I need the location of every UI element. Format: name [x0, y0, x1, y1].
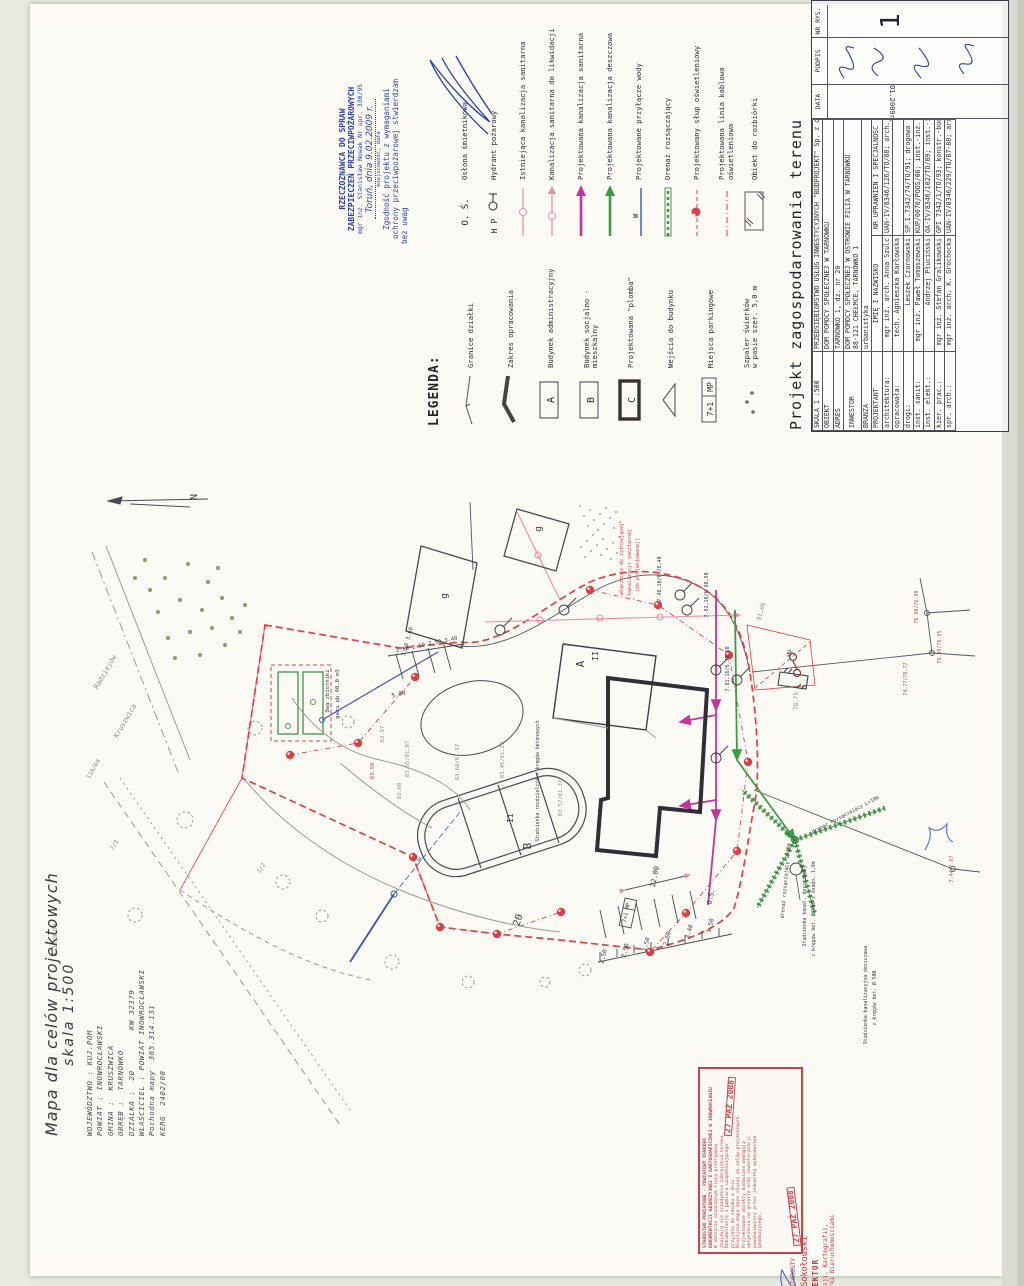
- light-pole-symbol: [436, 923, 444, 931]
- pzud-body: W obszarze oznaczonym linią przerywanązn…: [714, 1073, 764, 1248]
- map-label: 7.48,10/6.78,40: [657, 556, 663, 601]
- legend-item: W Projektowane przyłącze wody: [625, 0, 654, 238]
- staff-role: inst. elekt.:: [924, 352, 934, 431]
- map-label: z kręgów bet. Ø 500: [871, 970, 878, 1025]
- tb-row-label: SKALA 1 :500: [813, 352, 823, 431]
- map-purpose-note: Mapa dla celów projektowych skala 1:500 …: [42, 878, 180, 1136]
- map-label: 110/04: [85, 758, 102, 781]
- tb-row-value: DOM POMOCY SPOŁECZNEJ W OSTROWIE FILIA W…: [844, 120, 862, 352]
- map-note-lines: WOJEWÓDZTWO : KUJ.POMPOWIAT : INOWROCŁAW…: [85, 878, 168, 1136]
- building-c-icon: C: [617, 368, 645, 426]
- map-label: 83.60: [397, 783, 403, 800]
- red-parcel-lines: [180, 625, 815, 890]
- map-label: Studzienka rozdzielcza z kręgów betonowy…: [534, 720, 541, 841]
- tb-row-value: PRZEDSIĘBIORSTWO USŁUG INWESTYCYJNYCH "B…: [813, 120, 823, 352]
- map-label: 81.00: [756, 602, 768, 622]
- map-label: N: [189, 494, 200, 500]
- staff-license: [893, 120, 903, 236]
- legend-item-label: Zakres opracowania: [507, 290, 515, 368]
- light-pole-symbol: [493, 930, 501, 938]
- title-block-right-columns: DATA 01.2009r. PODPIS NR RYS. 1: [812, 5, 1008, 119]
- staff-license: GPI 7342/1/TO/93; konstr.-bud.: [934, 120, 944, 236]
- legend-item-label: Istniejąca kanalizacja sanitarna: [519, 42, 527, 180]
- inspector-dept2: Katastru i Gospodarki Nieruchomościami: [829, 1204, 836, 1286]
- scope-line-icon: [501, 368, 521, 426]
- legend-item: A Budynek administracyjny: [531, 240, 571, 426]
- map-note-scale: skala 1:500: [61, 878, 77, 1066]
- date-column: DATA 01.2009r.: [812, 85, 1008, 119]
- spruce-dots-icon: [740, 368, 762, 426]
- sewer-existing-icon: [514, 180, 533, 238]
- map-label: włączenie do istniejącej: [619, 523, 625, 595]
- legend-item-label: Projektowana kanalizacja deszczowa: [606, 33, 614, 180]
- title-block: Projekt zagospodarowania terenu SKALA 1 …: [785, 0, 1012, 432]
- boundary-line-icon: [461, 368, 481, 426]
- demolition-shed: [778, 668, 808, 689]
- legend-item: Projektowany słup oświetleniowy: [683, 0, 712, 238]
- map-label: 2.50: [598, 948, 609, 964]
- sewer-sanitary-projected: [680, 590, 716, 905]
- pen-mark: [925, 824, 953, 850]
- staff-role: opracowała:: [893, 352, 903, 431]
- fire-stamp-line4: Zgodność projektu z wymaganiami: [382, 60, 391, 258]
- tb-row-label: ADRES: [833, 352, 843, 431]
- fire-stamp-line5: ochrony przeciwpożarowej stwierdzam: [391, 60, 400, 258]
- svg-text:A: A: [546, 397, 557, 403]
- map-label: Kruszwica: [112, 703, 138, 740]
- legend-item-label: Budynek administracyjny: [547, 268, 555, 368]
- tb-staff-col2: IMIĘ I NAZWISKO: [872, 236, 882, 352]
- legend-item: Drenaż rozsączający: [654, 0, 683, 238]
- map-label: 7/3: [109, 838, 121, 851]
- signatures: [826, 38, 1006, 84]
- map-label: g: [440, 593, 450, 598]
- building-a-icon: A: [538, 368, 564, 426]
- scanner-edge-dark: [1017, 0, 1024, 1286]
- sewer-existing: [485, 512, 740, 623]
- light-pole-symbol: [557, 908, 565, 916]
- map-note-heading: Mapa dla celów projektowych: [42, 878, 61, 1136]
- legend-item-label: Projektowana kanalizacja sanitarna: [577, 33, 585, 180]
- legend-item-label: Wejścia do budynku: [667, 290, 675, 368]
- map-label: O.Ś.: [705, 888, 717, 905]
- gas-tank-pad: [271, 665, 331, 741]
- staff-role: kier. prac.:: [934, 352, 944, 431]
- staff-name: mgr inż. Paweł Tomaszewski: [914, 236, 924, 352]
- map-label: Hp: [786, 649, 793, 657]
- map-label: 83.50: [370, 763, 376, 780]
- staff-license: UAN-IV/8346/126/TO/88; arch.: [882, 120, 892, 236]
- staff-license: UAN-IV/8346/229/TO/87-88; arch.: [945, 120, 955, 236]
- demolition-rect-icon: [743, 180, 769, 238]
- legend-item: Zakres opracowania: [491, 240, 531, 426]
- drawing-number-header: NR RYS.: [812, 5, 828, 37]
- light-pole-symbol: [286, 751, 294, 759]
- building-c-plomba: [597, 678, 707, 856]
- map-note-line: POWIAT : INOWROCŁAWSKI: [95, 878, 105, 1136]
- svg-text:B: B: [586, 397, 597, 403]
- map-label: 7.82,10/6.80,90: [704, 572, 710, 617]
- legend-item: Istniejąca kanalizacja sanitarna: [509, 0, 538, 238]
- staff-role: architektura:: [882, 352, 892, 431]
- light-pole-symbol: [733, 847, 741, 855]
- legend-item-label: Kanalizacja sanitarna do likwidacji: [548, 29, 556, 180]
- map-note-line: WOJEWÓDZTWO : KUJ.POM: [85, 878, 95, 1136]
- hydrant-icon: H P: [485, 180, 505, 238]
- map-label: 79.25/75.95: [937, 630, 943, 663]
- legend-item-label: Granice działki: [467, 303, 475, 368]
- staff-role: drogi:: [903, 352, 913, 431]
- map-label: 83.55/81.87: [405, 741, 411, 777]
- map-label: 76.80/76.90: [914, 590, 920, 623]
- map-label: Dwa zbiorniki: [325, 669, 331, 712]
- staff-name: mgr inż. arch. Anna Szulc: [882, 236, 892, 352]
- legend-item: 7+1MP Miejsca parkingowe: [691, 240, 731, 426]
- legend-right-column: O. Ś. Osłona śmietnikowaH P Hydrant poża…: [451, 0, 770, 238]
- legend-item: Projektowana linia kablowa oświetleniowa: [712, 0, 741, 238]
- map-label: kanalizacji sanitarnej: [627, 529, 633, 595]
- legend-item: Projektowana kanalizacja deszczowa: [596, 0, 625, 238]
- tb-row-value: DOM POMOCY SPOŁECZNEJ W TARNÓWKU: [823, 120, 833, 352]
- water-line-icon: W: [630, 180, 649, 238]
- oval-lawn: [412, 670, 531, 766]
- map-note-line: DZIAŁKA : 20 KW 32379: [127, 878, 137, 1136]
- fire-stamp-handwritten-date: Toruń, dnia 9.02.2009 r.: [366, 99, 376, 218]
- light-pole-symbol: [411, 673, 419, 681]
- staff-name: Leszek Czarnowski: [903, 236, 913, 352]
- map-label: 83.45/81.23: [500, 742, 506, 778]
- map-label: Studzienka kanalizacyjna deszczowa: [863, 946, 869, 1044]
- map-note-line: Pochodna mapy 365.314.131: [147, 878, 157, 1136]
- signature-column: PODPIS: [812, 38, 1008, 85]
- tree-dots: [133, 558, 247, 660]
- inspector-title: INSPEKTOR: [811, 1204, 820, 1286]
- sewer-sanitary-proj-icon: [572, 180, 591, 238]
- tb-row-label: OBIEKT: [823, 352, 833, 431]
- map-label: 1.50: [705, 917, 716, 933]
- title-block-table: SKALA 1 :500 PRZEDSIĘBIORSTWO USŁUG INWE…: [811, 0, 1009, 432]
- map-label: 83.68/81.57: [455, 744, 461, 780]
- cable-line-icon: [717, 180, 736, 238]
- sewer-liquidate-icon: [543, 180, 562, 238]
- legend-item-label: Projektowane przyłącze wody: [635, 63, 643, 180]
- tb-row-label: BRANŻA: [862, 352, 872, 431]
- staff-license: KUP/0070/POOS/06; inst.-inż.: [914, 120, 924, 236]
- map-label: Studzienka kanal. deszczowej: [802, 866, 808, 947]
- lighting-cable: [290, 590, 748, 952]
- map-label: II: [506, 813, 515, 823]
- parking-box-icon: 7+1MP: [700, 368, 722, 426]
- fire-expert-stamp: RZECZOZNAWCA DO SPRAW ZABEZPIECZEŃ PRZEC…: [338, 60, 462, 258]
- tb-staff-col1: PROJEKTANT: [872, 352, 882, 431]
- light-pole-symbol: [586, 586, 594, 594]
- map-label: 22.00: [649, 865, 661, 887]
- legend-item: Kanalizacja sanitarna do likwidacji: [538, 0, 567, 238]
- svg-text:7+1: 7+1: [706, 402, 715, 417]
- drawing-title: Projekt zagospodarowania terenu: [787, 0, 805, 430]
- legend-item-label: Obiekt do rozbiórki: [751, 98, 759, 180]
- entrance-triangle-icon: [660, 368, 682, 426]
- map-label: 5.00: [391, 689, 407, 699]
- map-label: gazu pb 40,0 m3: [335, 669, 341, 719]
- legend-item-label: Projektowany słup oświetleniowy: [693, 46, 701, 180]
- svg-text:H P: H P: [490, 219, 499, 234]
- light-pole-symbol: [409, 853, 417, 861]
- map-label: A: [574, 660, 587, 667]
- legend-item: Wejścia do budynku: [651, 240, 691, 426]
- light-pole-symbol: [354, 739, 362, 747]
- svg-text:MP: MP: [706, 382, 715, 392]
- inspector-stamp: z up. STAROSTY Sławomir Sokołowski INSPE…: [790, 1204, 886, 1286]
- map-label: 20: [512, 913, 526, 928]
- legend-item: Projektowana kanalizacja sanitarna: [567, 0, 596, 238]
- staff-role: inst. sanit:: [914, 352, 924, 431]
- light-pole-symbol: [744, 758, 752, 766]
- drawing-number: 1: [876, 5, 906, 37]
- gravel-stipple: [579, 505, 621, 560]
- fire-stamp-line1: RZECZOZNAWCA DO SPRAW: [338, 60, 347, 258]
- map-label: B: [521, 842, 534, 849]
- tb-row-label: INWESTOR: [844, 352, 862, 431]
- fire-stamp-line2: ZABEZPIECZEŃ PRZECIWPOŻAROWYCH: [347, 60, 356, 258]
- legend-item: C Projektowana "plomba": [611, 240, 651, 426]
- staff-license: SP.I.7342/74/TO/91; drogowa: [903, 120, 913, 236]
- light-pole-icon: [688, 180, 707, 238]
- fire-stamp-signature: [426, 54, 496, 144]
- map-note-line: WŁAŚCICIEL : POWIAT INOWROCŁAWSKI: [137, 878, 147, 1136]
- staff-name: mgr inż. Stefan Gralikowski: [934, 236, 944, 352]
- legend-item: Obiekt do rozbiórki: [741, 0, 770, 238]
- existing-buildings: [406, 509, 569, 648]
- fire-stamp-line3: mgr inż. Stanisław Nowak Nr upr. 330/95: [356, 60, 365, 258]
- tb-row-value: TARNÓWKO 1, dz. nr 20: [833, 120, 843, 352]
- map-label: 78.75: [793, 692, 800, 710]
- tb-staff-col3: NR UPRAWNIEŃ I SPECJALNOŚĆ: [872, 120, 882, 236]
- map-label: z kręgów bet. Ø 500 z osadn. 1,0m: [810, 861, 817, 956]
- map-label: g: [534, 526, 544, 531]
- drawing-number-column: NR RYS. 1: [812, 5, 1008, 38]
- building-b-icon: B: [578, 368, 604, 426]
- map-label: 7.44/7.67: [949, 855, 955, 882]
- legend-left-column: Granice działki Zakres opracowaniaA Budy…: [451, 240, 771, 426]
- staff-name: mgr inż. arch. K. Grochocka: [945, 236, 955, 352]
- sewer-storm-proj-icon: [601, 180, 620, 238]
- light-pole-symbol: [682, 909, 690, 917]
- fire-stamp-line6: bez uwag: [400, 60, 409, 258]
- map-note-line: KERG 2402/08: [158, 878, 168, 1136]
- map-label: (do projektowanej): [635, 538, 641, 592]
- svg-text:C: C: [627, 397, 638, 403]
- manholes: [495, 583, 749, 763]
- map-label: 7.81,16/6.79,60: [725, 646, 731, 691]
- pzud-stamp: STAROSTWO POWIATOWE - POWIATOWY OŚRODEK …: [698, 1067, 803, 1254]
- pzud-body-line: geodezyjnego.: [758, 1073, 764, 1248]
- map-label: 2.50: [620, 942, 631, 958]
- map-label: II: [591, 651, 600, 661]
- map-note-line: GMINA : KRUSZWICA: [106, 878, 116, 1136]
- legend-item-label: Projektowana "plomba": [627, 277, 635, 368]
- date-header: DATA: [812, 85, 828, 118]
- legend-item-label: Szpaler świerków w pasie szer. 5,0 m: [743, 286, 759, 368]
- legend-item: Granice działki: [451, 240, 491, 426]
- date-value: 01.2009r.: [888, 85, 896, 118]
- map-label: 74.77/76.77: [903, 662, 909, 695]
- staff-license: OA-IV/8346/102/TO/89; inst.-inż.: [924, 120, 934, 236]
- map-label: 83.57/81.37: [558, 780, 564, 816]
- scanned-site-plan-page: { "title_block": { "title": "Projekt zag…: [0, 0, 1024, 1286]
- building-a-outline: [553, 644, 656, 730]
- tb-row-value: urbanistyka: [862, 120, 872, 352]
- legend-heading: LEGENDA:: [427, 355, 442, 426]
- map-note-line: OBRĘB : TARNÓWKO: [116, 878, 126, 1136]
- svg-text:W: W: [632, 213, 640, 218]
- staff-name: tech. Agnieszka Karłowska: [893, 236, 903, 352]
- inspector-signature: [776, 1266, 806, 1286]
- drainage-bar-icon: [659, 180, 678, 238]
- legend-item-label: Projektowana linia kablowa oświetleniowa: [718, 67, 734, 180]
- legend-item-label: Miejsca parkingowe: [707, 290, 715, 368]
- legend-item-label: Budynek socjalno - mieszkalny: [583, 290, 599, 368]
- map-label: 83.97: [380, 726, 386, 743]
- legend-item-label: Drenaż rozsączający: [664, 98, 672, 180]
- map-label: Radziejów: [92, 653, 118, 691]
- map-label: 3/2: [256, 861, 268, 874]
- site-plan-drawing: NKruszwicaRadziejów110/04ggAIIBII2022.00…: [40, 460, 1000, 1160]
- legend-item: Szpaler świerków w pasie szer. 5,0 m: [731, 240, 771, 426]
- staff-name: Andrzej Płuciński: [924, 236, 934, 352]
- map-label: drenaż rozsączający L=10m: [780, 843, 793, 919]
- legend-item: B Budynek socjalno - mieszkalny: [571, 240, 611, 426]
- staff-role: spr. arch.:: [945, 352, 955, 431]
